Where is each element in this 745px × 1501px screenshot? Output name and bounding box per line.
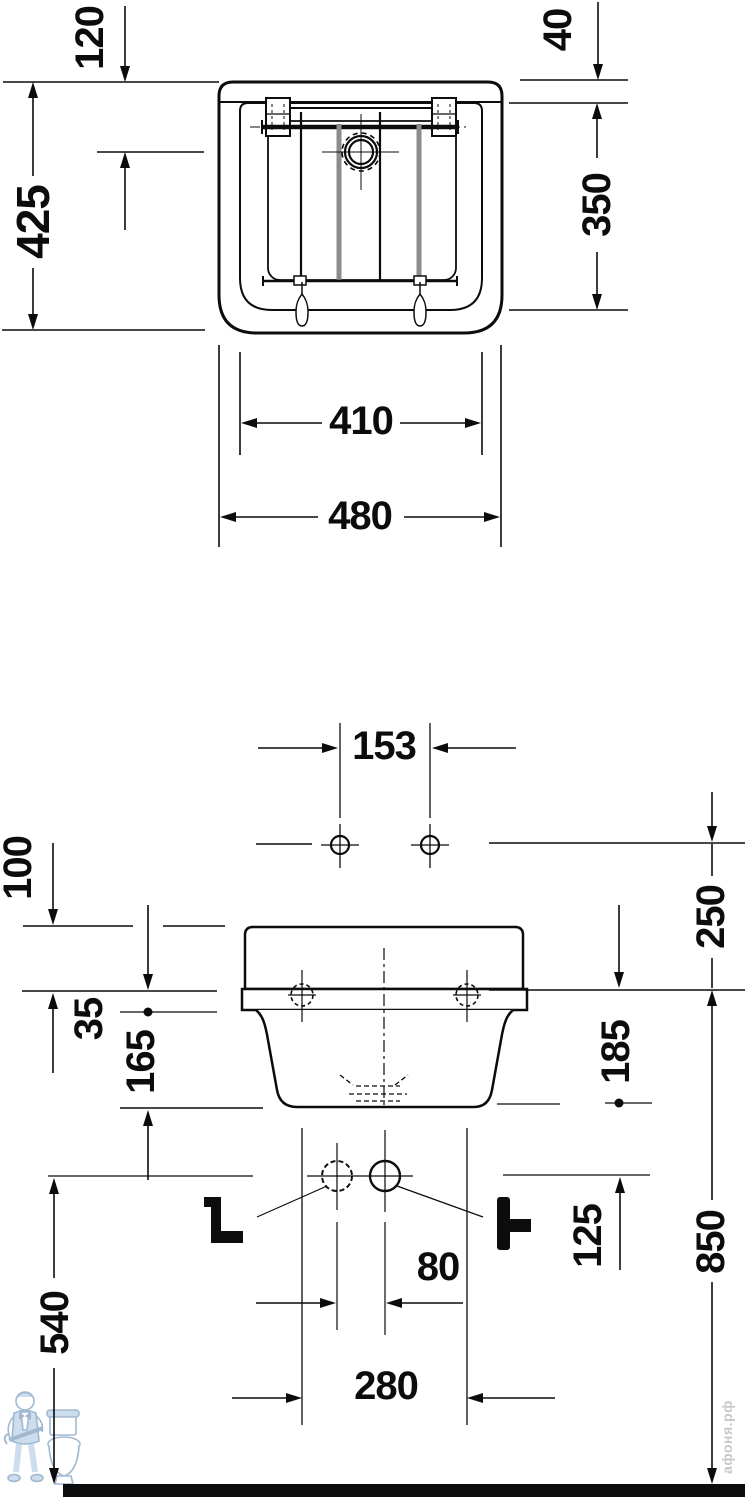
watermark-site-text: афоня.рф (719, 1400, 735, 1474)
floor-line (63, 1484, 745, 1497)
technical-drawing-page: 120 425 40 350 410 480 153 100 35 165 25… (0, 0, 745, 1501)
leader-lines (257, 1186, 483, 1217)
right-bracket (432, 98, 456, 136)
plumber-shoe-left (8, 1475, 20, 1482)
dim-280-label: 280 (351, 1366, 421, 1406)
toilet-base (55, 1476, 73, 1484)
dim-35-label: 35 (69, 995, 109, 1044)
dim-120-label: 120 (70, 3, 110, 73)
wrench-jaw (5, 1434, 8, 1444)
dim-425-label: 425 (10, 182, 56, 262)
dim-100-label: 100 (0, 833, 38, 903)
dim-165-label: 165 (121, 1027, 161, 1097)
dim-40-label: 40 (538, 6, 578, 55)
dim-80-label: 80 (414, 1247, 463, 1287)
dim-350-label: 350 (577, 170, 617, 240)
dim-480-label: 480 (325, 496, 395, 536)
front-view-drawing (219, 82, 502, 333)
plumber-leg-left (16, 1444, 19, 1472)
wall-datum-lines (256, 843, 745, 844)
dim-410-label: 410 (326, 401, 396, 441)
plumber-mascot-logo (5, 1392, 80, 1484)
rod-sleeve-left (294, 276, 306, 285)
plumber-leg-right (31, 1444, 35, 1472)
dim-250-label: 250 (691, 882, 731, 952)
dim-850-label: 850 (691, 1207, 731, 1277)
left-bracket (266, 98, 290, 136)
toilet-lid (47, 1410, 79, 1417)
plumber-shoe-right (31, 1475, 43, 1482)
dim-165-lines (120, 1108, 263, 1180)
floor-outlet-symbol-icon (497, 1197, 531, 1250)
dim-153-label: 153 (349, 726, 419, 766)
dim-185-label: 185 (596, 1017, 636, 1087)
wall-outlet-symbol-icon (204, 1197, 243, 1243)
dim-125-label: 125 (568, 1201, 608, 1271)
dim-540-label: 540 (35, 1288, 75, 1358)
